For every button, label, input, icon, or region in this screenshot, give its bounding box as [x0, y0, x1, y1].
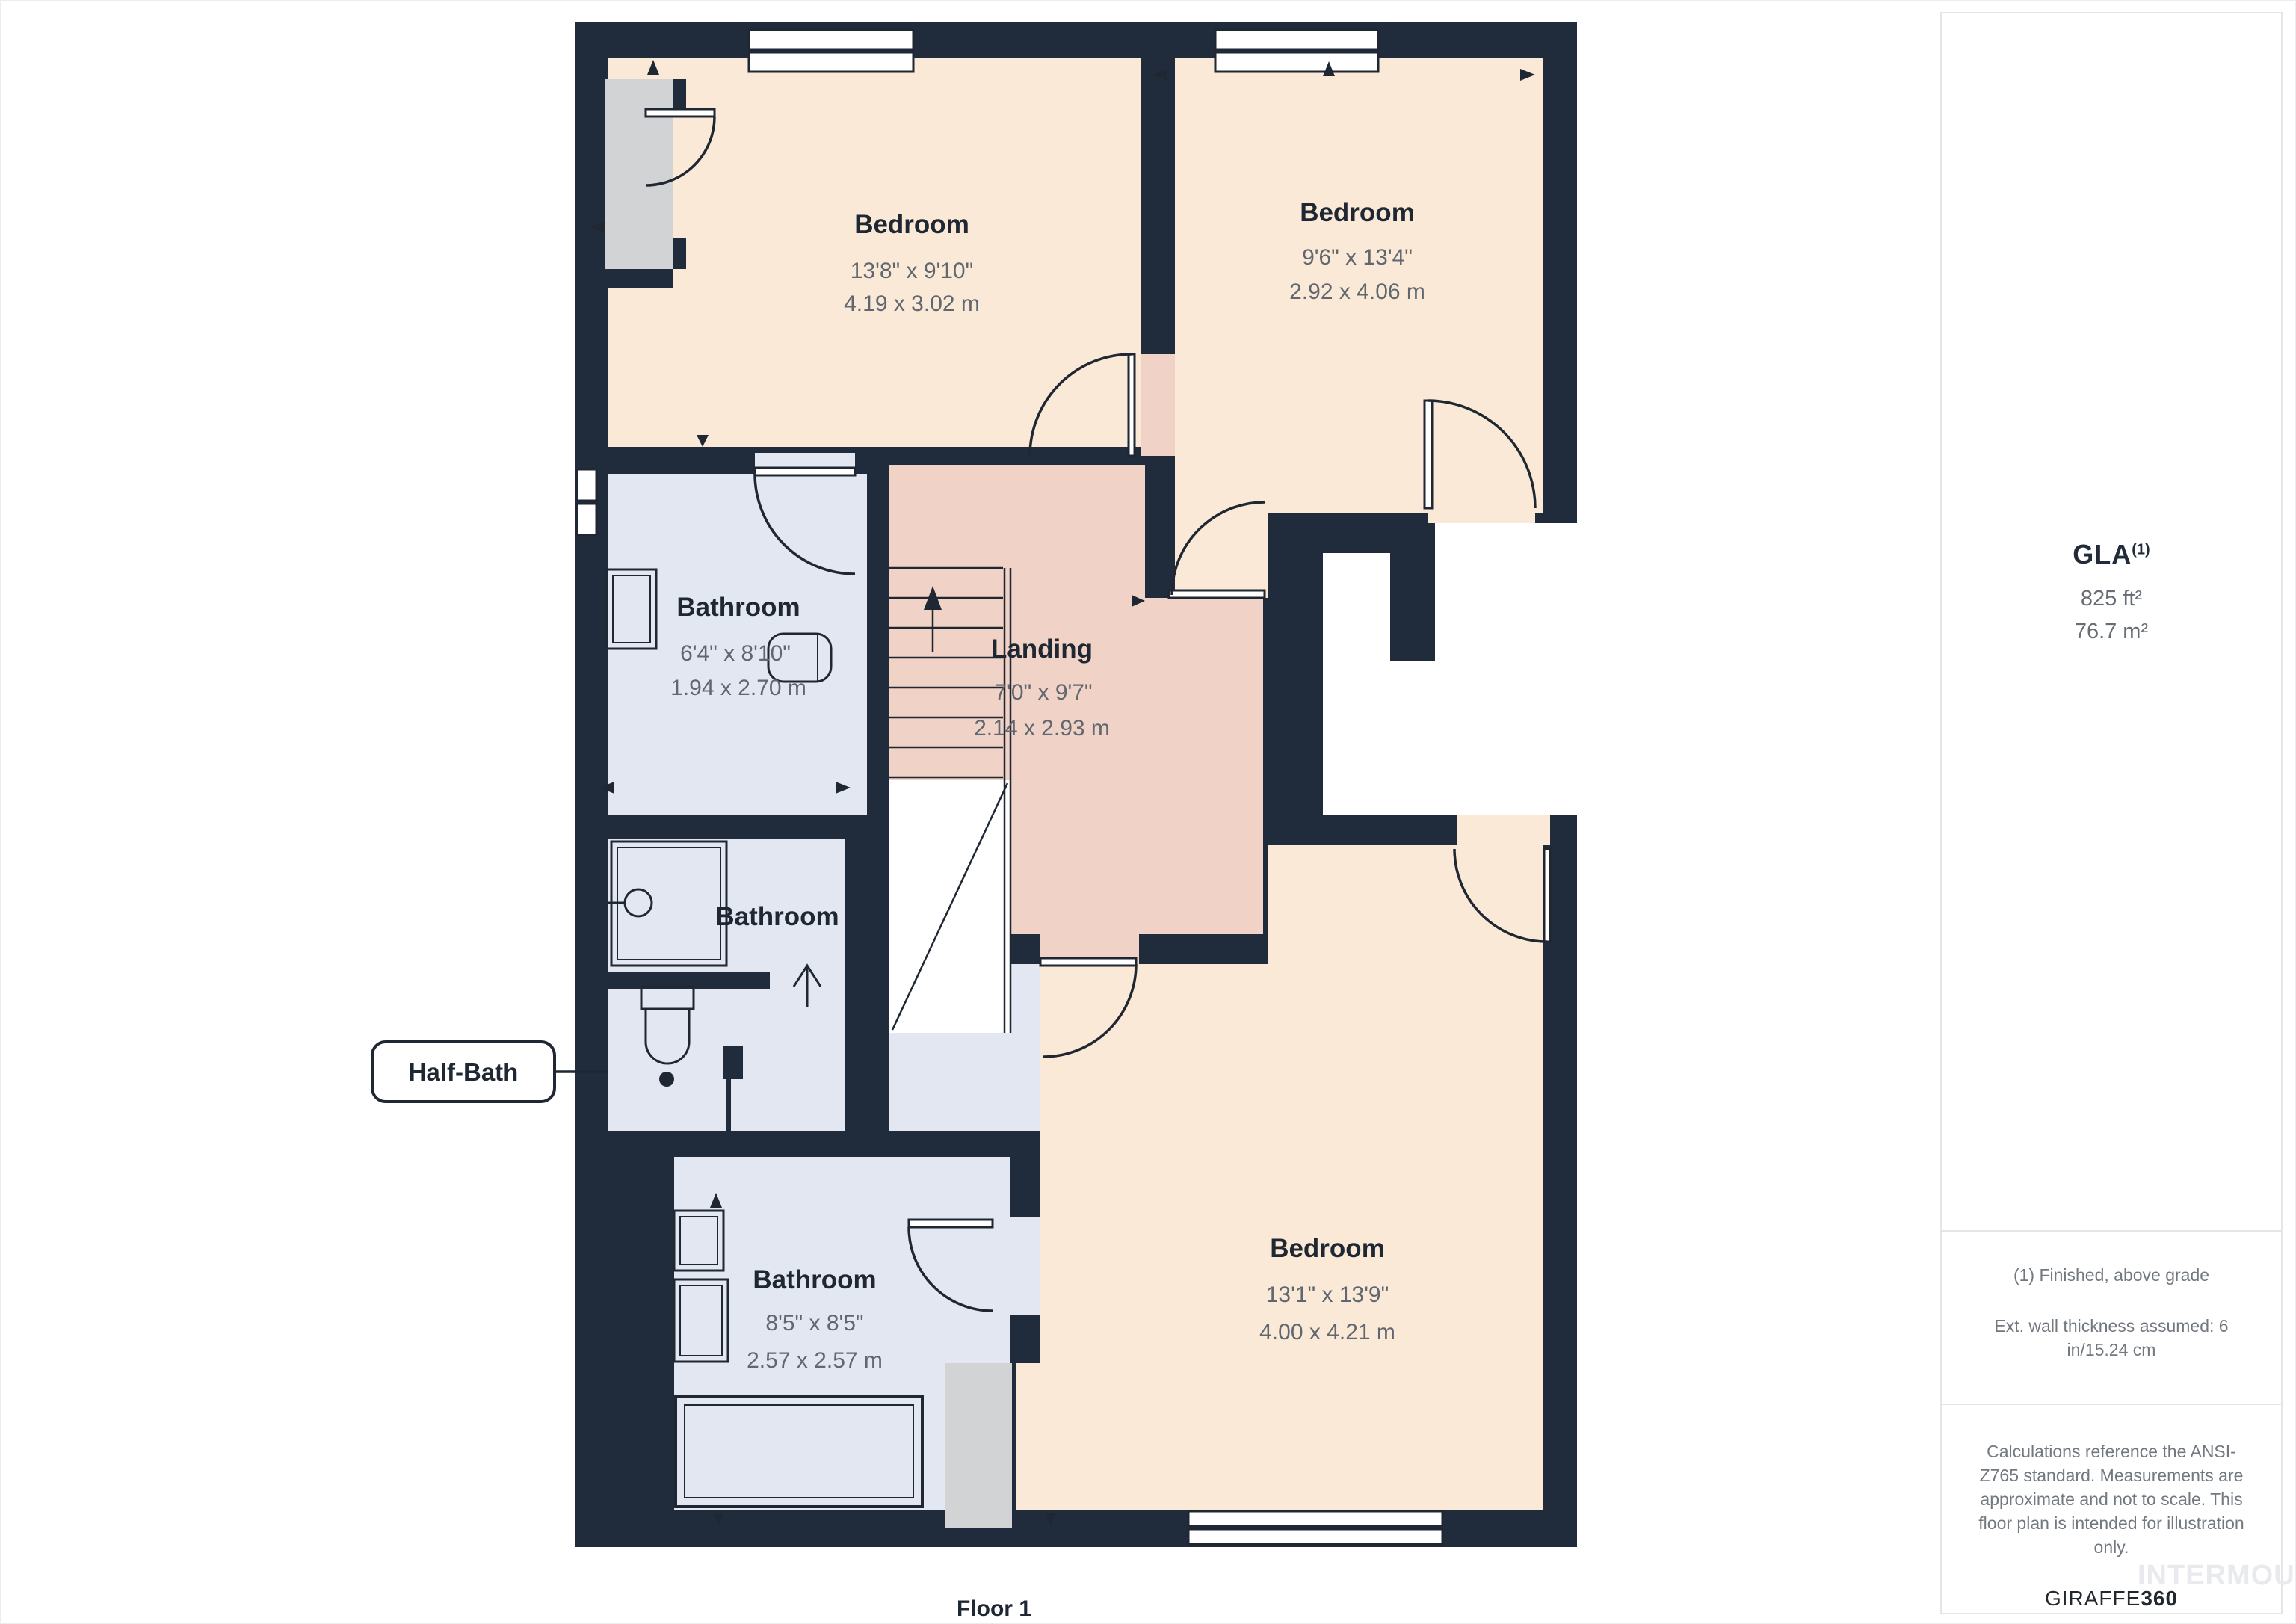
bedroom-tl-name: Bedroom	[854, 210, 969, 239]
brand-suffix: 360	[2141, 1587, 2178, 1611]
toilet-halfbath-seat-dot	[659, 1072, 674, 1087]
landing-dims-m: 2.14 x 2.93 m	[974, 716, 1110, 741]
door-leaf-bedroom-br	[1040, 958, 1136, 966]
room-fills	[575, 58, 1543, 1528]
bedroom-tl-dims-m: 4.19 x 3.02 m	[844, 291, 980, 316]
window-bathroom-top-1	[577, 469, 596, 501]
door-leaf-bathroom-top	[755, 468, 855, 475]
halfbath-callout: Half-Bath	[372, 1042, 608, 1102]
gla-section: GLA(1) 825 ft² 76.7 m²	[1942, 13, 2281, 1230]
closet-top-base	[575, 269, 673, 288]
brand-name: GIRAFFE	[2045, 1587, 2141, 1611]
bedroom-br-dims-m: 4.00 x 4.21 m	[1259, 1320, 1395, 1344]
window-bedroom-br-2	[1188, 1529, 1442, 1544]
door-gap-bathroom-bottom	[993, 1217, 1040, 1315]
closet-top-floor	[605, 79, 673, 269]
window-bedroom-br-1	[1188, 1511, 1442, 1526]
bathroom-top-dims-ft: 6'4" x 8'10"	[680, 641, 791, 666]
bedroom-tr-dims-m: 2.92 x 4.06 m	[1289, 280, 1425, 304]
door-gap-bedroom-tr	[1428, 513, 1535, 523]
landing-dims-ft: 7'0" x 9'7"	[994, 680, 1092, 705]
floor-label: Floor 1	[889, 1596, 1099, 1622]
door-leaf-bedroom-tr-landing	[1169, 590, 1265, 598]
door-leaf-bedroom-br-2	[1544, 849, 1550, 942]
window-bedroom-tl-1	[749, 30, 913, 49]
halfbath-callout-label: Half-Bath	[409, 1058, 519, 1086]
gla-superscript: (1)	[2132, 542, 2150, 558]
info-panel: GLA(1) 825 ft² 76.7 m² (1) Finished, abo…	[1940, 12, 2283, 1614]
closet-top-stub-a	[673, 79, 686, 112]
landing-floor-upper	[889, 465, 1145, 598]
bedroom-br-dims-ft: 13'1" x 13'9"	[1266, 1282, 1389, 1307]
bathroom-mid-name: Bathroom	[715, 902, 839, 931]
door-gap-bedroom-br-2	[1457, 815, 1550, 845]
wall-halfbath-stub	[723, 1046, 743, 1079]
closet-bottom-edge	[1012, 1363, 1016, 1528]
note-finished-grade: (1) Finished, above grade	[1942, 1265, 2281, 1288]
closet-bottom-floor	[945, 1363, 1012, 1528]
gla-value-m: 76.7 m²	[1942, 617, 2281, 650]
bathroom-bottom-name: Bathroom	[753, 1265, 876, 1294]
window-bathroom-top-2	[577, 504, 596, 535]
door-leaf-bedroom-tl	[1129, 354, 1135, 456]
door-leaf-closet-tl	[646, 109, 715, 117]
notes-section: (1) Finished, above grade Ext. wall thic…	[1942, 1232, 2281, 1404]
bathroom-bottom-dims-ft: 8'5" x 8'5"	[765, 1311, 863, 1336]
gla-label: GLA	[2073, 540, 2132, 569]
disclaimer-text: Calculations reference the ANSI-Z765 sta…	[1972, 1441, 2250, 1561]
halfbath-slider-door	[726, 1079, 731, 1131]
gla-value-ft: 825 ft²	[1942, 584, 2281, 617]
door-gap-bedroom-tl	[1141, 354, 1175, 456]
bathroom-bottom-dims-m: 2.57 x 2.57 m	[747, 1348, 883, 1373]
floor-plan-page: Bedroom 13'8" x 9'10" 4.19 x 3.02 m Bedr…	[0, 0, 2296, 1624]
landing-name: Landing	[991, 635, 1093, 664]
bathroom-top-dims-m: 1.94 x 2.70 m	[670, 676, 806, 700]
door-leaf-bathroom-bottom	[909, 1220, 993, 1227]
bedroom-tr-name: Bedroom	[1300, 198, 1415, 227]
bedroom-tr-dims-ft: 9'6" x 13'4"	[1302, 245, 1413, 270]
closet-top-stub-b	[673, 238, 686, 269]
window-bedroom-tr-2	[1215, 52, 1378, 72]
door-leaf-bedroom-tr	[1425, 401, 1432, 508]
bedroom-br-name: Bedroom	[1270, 1234, 1385, 1263]
wall-lobe-left	[1145, 523, 1175, 598]
bathroom-top-name: Bathroom	[676, 593, 800, 622]
wall-step-b	[1390, 523, 1435, 661]
window-bedroom-tr-1	[1215, 30, 1378, 49]
bedroom-tl-dims-ft: 13'8" x 9'10"	[851, 259, 974, 283]
giraffe360-logo: GIRAFFE360	[1942, 1585, 2281, 1614]
note-wall-thickness: Ext. wall thickness assumed: 6 in/15.24 …	[1962, 1315, 2261, 1363]
window-bedroom-tl-2	[749, 52, 913, 72]
